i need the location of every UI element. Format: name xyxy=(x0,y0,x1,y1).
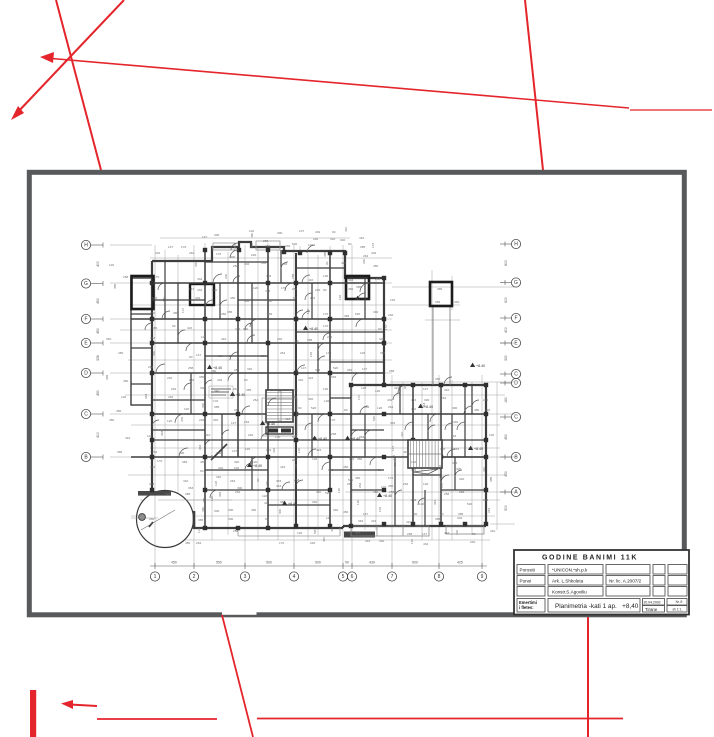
svg-text:120: 120 xyxy=(356,500,360,505)
svg-text:240: 240 xyxy=(277,337,282,341)
svg-text:118: 118 xyxy=(392,455,396,460)
svg-text:340: 340 xyxy=(455,530,459,535)
svg-text:258: 258 xyxy=(123,275,128,279)
svg-text:363: 363 xyxy=(218,492,222,497)
svg-text:410: 410 xyxy=(341,261,346,265)
svg-text:240: 240 xyxy=(248,433,253,437)
svg-text:365: 365 xyxy=(435,300,440,304)
svg-text:264: 264 xyxy=(261,261,266,265)
svg-text:+8.40: +8.40 xyxy=(318,437,327,441)
svg-text:416: 416 xyxy=(371,519,376,523)
svg-text:120: 120 xyxy=(212,288,217,292)
svg-text:sh 1:1..: sh 1:1.. xyxy=(673,608,684,612)
svg-text:363: 363 xyxy=(364,405,369,409)
svg-text:300: 300 xyxy=(424,398,429,402)
svg-text:340: 340 xyxy=(459,477,464,481)
svg-text:118: 118 xyxy=(378,507,382,512)
svg-text:550: 550 xyxy=(216,561,222,565)
svg-text:8: 8 xyxy=(438,574,441,580)
svg-text:300: 300 xyxy=(179,451,184,455)
svg-text:300: 300 xyxy=(277,231,282,235)
svg-text:363: 363 xyxy=(451,434,456,438)
svg-text:258: 258 xyxy=(292,287,297,291)
svg-text:432: 432 xyxy=(168,395,173,399)
svg-text:340: 340 xyxy=(201,403,205,408)
svg-text:365: 365 xyxy=(411,468,416,472)
svg-text:D: D xyxy=(514,381,518,387)
svg-text:410: 410 xyxy=(308,278,313,282)
svg-text:240: 240 xyxy=(313,237,318,241)
svg-text:2: 2 xyxy=(193,574,196,580)
svg-text:416: 416 xyxy=(155,251,160,255)
svg-text:i fletes:: i fletes: xyxy=(519,605,534,610)
svg-text:258: 258 xyxy=(411,498,416,502)
svg-text:90: 90 xyxy=(265,517,269,521)
svg-text:118: 118 xyxy=(309,352,313,357)
svg-text:264: 264 xyxy=(189,251,194,255)
svg-text:520: 520 xyxy=(325,491,330,495)
svg-text:90: 90 xyxy=(294,388,298,392)
svg-text:120: 120 xyxy=(361,386,366,390)
svg-text:G: G xyxy=(514,280,518,286)
svg-text:432: 432 xyxy=(457,516,462,520)
svg-text:170: 170 xyxy=(275,435,280,439)
svg-text:264: 264 xyxy=(280,351,285,355)
svg-text:410: 410 xyxy=(285,417,290,421)
svg-text:500: 500 xyxy=(504,505,508,511)
svg-text:520: 520 xyxy=(292,242,297,246)
svg-text:416: 416 xyxy=(308,376,313,380)
svg-text:120: 120 xyxy=(167,419,172,423)
svg-text:Nr. lic. A.2007/2: Nr. lic. A.2007/2 xyxy=(609,578,642,583)
svg-text:365: 365 xyxy=(227,310,232,314)
svg-text:160: 160 xyxy=(504,397,508,403)
svg-text:C: C xyxy=(514,415,518,421)
svg-text:147: 147 xyxy=(231,421,236,425)
svg-text:+8.40: +8.40 xyxy=(213,366,222,370)
svg-text:416: 416 xyxy=(150,465,155,469)
svg-text:520: 520 xyxy=(355,312,360,316)
svg-text:264: 264 xyxy=(483,498,488,502)
svg-text:147: 147 xyxy=(189,287,194,291)
svg-text:147: 147 xyxy=(422,532,427,536)
svg-text:264: 264 xyxy=(358,483,362,488)
svg-text:258: 258 xyxy=(234,368,239,372)
svg-text:363: 363 xyxy=(149,482,154,486)
svg-text:410: 410 xyxy=(330,237,335,241)
svg-text:G: G xyxy=(84,281,88,287)
svg-text:336: 336 xyxy=(96,355,100,361)
svg-text:340: 340 xyxy=(162,297,166,302)
svg-text:118: 118 xyxy=(489,433,494,437)
svg-text:240: 240 xyxy=(267,299,272,303)
svg-text:340: 340 xyxy=(234,460,239,464)
svg-text:385: 385 xyxy=(117,450,122,454)
svg-text:385: 385 xyxy=(173,311,178,315)
svg-text:385: 385 xyxy=(199,375,204,379)
svg-text:118: 118 xyxy=(249,229,254,233)
svg-text:425: 425 xyxy=(457,561,463,565)
svg-text:264: 264 xyxy=(265,244,270,248)
svg-text:385: 385 xyxy=(214,405,219,409)
svg-text:240: 240 xyxy=(292,395,297,399)
svg-text:385: 385 xyxy=(435,517,440,521)
svg-text:120: 120 xyxy=(337,488,341,493)
svg-text:240: 240 xyxy=(199,418,204,422)
svg-text:500: 500 xyxy=(315,561,321,565)
svg-text:450: 450 xyxy=(171,561,177,565)
svg-text:170: 170 xyxy=(323,324,328,328)
svg-text:416: 416 xyxy=(265,289,270,293)
svg-text:118: 118 xyxy=(390,298,395,302)
svg-text:258: 258 xyxy=(444,492,449,496)
svg-text:410: 410 xyxy=(400,432,404,437)
svg-text:+8.40: +8.40 xyxy=(476,364,485,368)
svg-text:Punoi: Punoi xyxy=(520,578,532,583)
svg-text:120: 120 xyxy=(253,286,258,290)
svg-text:450: 450 xyxy=(504,471,508,477)
svg-text:410: 410 xyxy=(490,529,495,533)
svg-text:450: 450 xyxy=(504,434,508,440)
svg-text:Porositi: Porositi xyxy=(520,567,535,572)
svg-text:410: 410 xyxy=(411,407,416,411)
svg-text:520: 520 xyxy=(165,492,170,496)
svg-text:120: 120 xyxy=(324,399,329,403)
svg-text:170: 170 xyxy=(326,351,331,355)
svg-text:4: 4 xyxy=(293,574,296,580)
svg-text:450: 450 xyxy=(201,507,205,512)
svg-text:432: 432 xyxy=(423,542,428,546)
svg-text:365: 365 xyxy=(380,351,385,355)
svg-text:20.04.2002: 20.04.2002 xyxy=(644,600,661,604)
svg-text:385: 385 xyxy=(244,299,249,303)
svg-text:432: 432 xyxy=(217,378,222,382)
svg-text:264: 264 xyxy=(363,254,368,258)
svg-text:340: 340 xyxy=(213,418,218,422)
svg-text:170: 170 xyxy=(381,485,386,489)
svg-text:264: 264 xyxy=(196,541,201,545)
svg-text:520: 520 xyxy=(372,416,376,421)
svg-text:GODINE BANIMI 11K: GODINE BANIMI 11K xyxy=(542,555,638,562)
svg-text:258: 258 xyxy=(331,432,336,436)
svg-text:416: 416 xyxy=(276,484,281,488)
svg-text:432: 432 xyxy=(439,475,444,479)
svg-text:385: 385 xyxy=(202,498,206,503)
svg-text:416: 416 xyxy=(403,450,408,454)
svg-text:410: 410 xyxy=(96,432,100,438)
svg-text:363: 363 xyxy=(433,500,437,505)
svg-text:170: 170 xyxy=(181,245,186,249)
svg-text:258: 258 xyxy=(407,532,412,536)
svg-text:416: 416 xyxy=(280,465,285,469)
svg-text:300: 300 xyxy=(228,517,233,521)
svg-text:450: 450 xyxy=(343,465,348,469)
svg-text:520: 520 xyxy=(333,366,338,370)
svg-text:410: 410 xyxy=(264,501,269,505)
svg-text:363: 363 xyxy=(150,336,155,340)
svg-text:170: 170 xyxy=(440,483,444,488)
svg-text:147: 147 xyxy=(362,367,367,371)
svg-text:520: 520 xyxy=(313,529,317,534)
svg-text:416: 416 xyxy=(348,278,353,282)
svg-text:118: 118 xyxy=(360,351,365,355)
svg-text:90: 90 xyxy=(298,406,302,410)
svg-text:1: 1 xyxy=(154,574,157,580)
svg-text:300: 300 xyxy=(278,509,282,514)
svg-text:118: 118 xyxy=(214,481,218,486)
svg-text:520: 520 xyxy=(152,296,157,300)
svg-text:340: 340 xyxy=(247,367,252,371)
svg-text:147: 147 xyxy=(299,229,304,233)
svg-text:363: 363 xyxy=(452,461,457,465)
svg-text:147: 147 xyxy=(197,528,201,533)
svg-text:365: 365 xyxy=(266,274,271,278)
svg-text:258: 258 xyxy=(389,369,394,373)
svg-text:385: 385 xyxy=(307,338,312,342)
svg-text:5: 5 xyxy=(342,574,345,580)
svg-text:410: 410 xyxy=(205,433,210,437)
svg-text:147: 147 xyxy=(301,366,306,370)
svg-text:240: 240 xyxy=(285,244,290,248)
svg-text:432: 432 xyxy=(197,277,202,281)
svg-text:258: 258 xyxy=(233,264,238,268)
svg-text:340: 340 xyxy=(333,508,338,512)
svg-text:410: 410 xyxy=(322,537,326,542)
svg-text:385: 385 xyxy=(360,245,365,249)
svg-text:90: 90 xyxy=(332,230,336,234)
svg-text:170: 170 xyxy=(357,395,361,400)
svg-text:450: 450 xyxy=(200,460,205,464)
svg-text:432: 432 xyxy=(195,296,200,300)
svg-text:+8.40: +8.40 xyxy=(383,494,392,498)
svg-text:147: 147 xyxy=(423,387,428,391)
svg-text:170: 170 xyxy=(384,325,388,330)
svg-text:432: 432 xyxy=(387,398,392,402)
svg-text:170: 170 xyxy=(323,312,328,316)
svg-text:264: 264 xyxy=(148,365,153,369)
svg-text:363: 363 xyxy=(144,394,148,399)
svg-text:258: 258 xyxy=(263,239,268,243)
svg-text:416: 416 xyxy=(316,448,321,452)
svg-text:363: 363 xyxy=(331,375,336,379)
svg-text:H: H xyxy=(514,242,518,248)
svg-text:147: 147 xyxy=(326,516,331,520)
svg-text:385: 385 xyxy=(113,284,117,289)
svg-text:120: 120 xyxy=(306,309,310,314)
svg-text:432: 432 xyxy=(438,465,442,470)
svg-text:340: 340 xyxy=(152,351,156,356)
svg-text:264: 264 xyxy=(234,408,239,412)
svg-text:410: 410 xyxy=(406,520,411,524)
svg-text:90: 90 xyxy=(325,261,329,265)
svg-text:+8.40: +8.40 xyxy=(266,422,275,426)
svg-text:432: 432 xyxy=(315,230,320,234)
svg-text:118: 118 xyxy=(201,335,206,339)
svg-text:385: 385 xyxy=(185,492,190,496)
svg-text:147: 147 xyxy=(391,446,395,451)
svg-text:520: 520 xyxy=(311,406,316,410)
svg-text:300: 300 xyxy=(230,255,235,259)
svg-text:600: 600 xyxy=(504,297,508,303)
svg-text:264: 264 xyxy=(388,405,393,409)
svg-text:330: 330 xyxy=(504,355,508,361)
svg-text:416: 416 xyxy=(125,436,130,440)
svg-text:365: 365 xyxy=(198,518,203,522)
svg-text:432: 432 xyxy=(244,262,249,266)
svg-text:450: 450 xyxy=(96,390,100,396)
svg-text:365: 365 xyxy=(357,457,362,461)
svg-text:365: 365 xyxy=(282,262,287,266)
svg-text:410: 410 xyxy=(344,227,348,232)
svg-text:264: 264 xyxy=(235,490,240,494)
svg-text:340: 340 xyxy=(362,259,366,264)
svg-text:363: 363 xyxy=(355,531,360,535)
svg-text:300: 300 xyxy=(214,233,219,237)
svg-text:500: 500 xyxy=(266,561,272,565)
svg-text:147: 147 xyxy=(371,243,375,248)
svg-text:90: 90 xyxy=(348,242,352,246)
svg-text:240: 240 xyxy=(167,376,172,380)
svg-text:432: 432 xyxy=(218,466,223,470)
svg-text:450: 450 xyxy=(230,296,235,300)
svg-text:Tirane: Tirane xyxy=(645,607,658,612)
svg-text:90: 90 xyxy=(293,296,297,300)
svg-text:C: C xyxy=(84,412,88,418)
svg-text:340: 340 xyxy=(316,490,321,494)
svg-text:264: 264 xyxy=(487,508,491,513)
svg-text:90: 90 xyxy=(244,378,248,382)
svg-text:450: 450 xyxy=(348,287,353,291)
svg-text:170: 170 xyxy=(157,459,162,463)
svg-text:385: 385 xyxy=(246,388,251,392)
svg-text:120: 120 xyxy=(410,539,414,544)
svg-text:416: 416 xyxy=(394,386,399,390)
svg-text:450: 450 xyxy=(221,312,226,316)
svg-text:118: 118 xyxy=(234,466,239,470)
svg-text:240: 240 xyxy=(483,398,488,402)
svg-text:520: 520 xyxy=(467,502,472,506)
svg-text:147: 147 xyxy=(196,353,201,357)
svg-text:240: 240 xyxy=(388,313,393,317)
svg-text:432: 432 xyxy=(197,288,202,292)
svg-text:F: F xyxy=(84,317,87,323)
svg-text:340: 340 xyxy=(265,481,269,486)
svg-text:416: 416 xyxy=(294,464,298,469)
svg-text:90: 90 xyxy=(323,288,327,292)
svg-text:450: 450 xyxy=(96,328,100,334)
svg-text:258: 258 xyxy=(261,354,266,358)
svg-text:240: 240 xyxy=(315,288,320,292)
svg-text:90: 90 xyxy=(472,532,476,536)
svg-text:450: 450 xyxy=(116,409,121,413)
svg-text:450: 450 xyxy=(435,377,440,381)
svg-text:120: 120 xyxy=(419,502,424,506)
svg-text:432: 432 xyxy=(298,378,303,382)
svg-text:90: 90 xyxy=(440,512,444,516)
svg-text:C: C xyxy=(514,372,518,378)
svg-text:9: 9 xyxy=(481,574,484,580)
svg-text:416: 416 xyxy=(365,539,370,543)
svg-text:432: 432 xyxy=(272,448,276,453)
svg-text:170: 170 xyxy=(388,476,393,480)
svg-text:264: 264 xyxy=(327,335,332,339)
svg-text:363: 363 xyxy=(198,445,202,450)
svg-text:258: 258 xyxy=(459,490,464,494)
svg-text:416: 416 xyxy=(444,531,449,535)
svg-text:450: 450 xyxy=(118,351,123,355)
svg-text:340: 340 xyxy=(453,420,458,424)
svg-text:120: 120 xyxy=(297,448,301,453)
svg-text:264: 264 xyxy=(253,398,258,402)
svg-text:+8.40: +8.40 xyxy=(288,502,297,506)
svg-text:F: F xyxy=(514,316,517,322)
svg-text:363: 363 xyxy=(160,431,164,436)
svg-text:410: 410 xyxy=(221,337,226,341)
svg-text:170: 170 xyxy=(216,252,221,256)
svg-text:240: 240 xyxy=(224,274,228,279)
svg-text:450: 450 xyxy=(267,312,272,316)
svg-text:450: 450 xyxy=(474,408,479,412)
svg-text:170: 170 xyxy=(281,286,286,290)
svg-text:410: 410 xyxy=(482,467,486,472)
svg-text:363: 363 xyxy=(454,447,459,451)
svg-text:450: 450 xyxy=(373,490,378,494)
svg-text:340: 340 xyxy=(243,327,248,331)
svg-text:340: 340 xyxy=(216,475,221,479)
svg-text:170: 170 xyxy=(279,541,284,545)
svg-text:410: 410 xyxy=(349,457,354,461)
svg-text:120: 120 xyxy=(210,496,214,501)
svg-text:90: 90 xyxy=(200,469,204,473)
svg-text:340: 340 xyxy=(235,327,240,331)
svg-text:385: 385 xyxy=(489,477,493,482)
svg-text:520: 520 xyxy=(292,435,297,439)
svg-text:264: 264 xyxy=(152,450,157,454)
svg-text:3: 3 xyxy=(244,574,247,580)
svg-text:Ark. L.Shkoleta: Ark. L.Shkoleta xyxy=(552,578,584,583)
svg-text:365: 365 xyxy=(344,314,349,318)
svg-text:340: 340 xyxy=(308,397,313,401)
svg-text:90: 90 xyxy=(172,324,176,328)
svg-text:147: 147 xyxy=(168,245,173,249)
svg-text:170: 170 xyxy=(213,399,218,403)
svg-text:Nr. fl:: Nr. fl: xyxy=(676,600,684,604)
svg-text:240: 240 xyxy=(251,253,256,257)
svg-text:300: 300 xyxy=(228,508,233,512)
svg-text:7: 7 xyxy=(391,574,394,580)
svg-text:400: 400 xyxy=(96,261,100,267)
svg-text:120: 120 xyxy=(377,406,382,410)
svg-text:410: 410 xyxy=(444,388,449,392)
svg-text:410: 410 xyxy=(183,479,188,483)
svg-text:120: 120 xyxy=(328,468,333,472)
svg-text:340: 340 xyxy=(312,500,317,504)
svg-text:147: 147 xyxy=(232,449,237,453)
svg-text:90: 90 xyxy=(403,385,407,389)
svg-text:*UNICON.*sh.p.k: *UNICON.*sh.p.k xyxy=(552,567,588,572)
svg-text:118: 118 xyxy=(184,407,189,411)
svg-text:450: 450 xyxy=(355,476,360,480)
svg-text:450: 450 xyxy=(251,508,256,512)
svg-text:170: 170 xyxy=(266,448,271,452)
svg-text:118: 118 xyxy=(218,354,223,358)
svg-text:363: 363 xyxy=(390,421,395,425)
svg-text:430: 430 xyxy=(369,561,375,565)
svg-text:264: 264 xyxy=(230,479,235,483)
svg-text:147: 147 xyxy=(210,455,214,460)
svg-text:264: 264 xyxy=(244,420,249,424)
svg-text:H: H xyxy=(84,243,88,249)
